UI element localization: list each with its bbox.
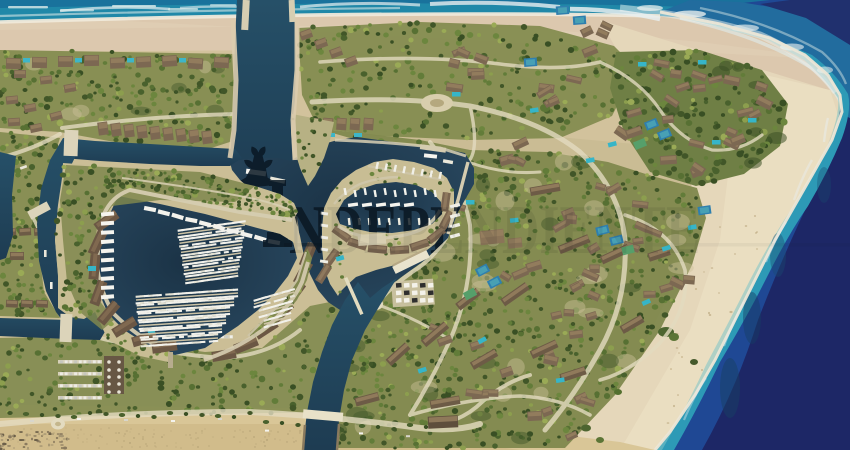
svg-text:NDEPENDIENTE: NDEPENDIENTE — [289, 192, 701, 269]
